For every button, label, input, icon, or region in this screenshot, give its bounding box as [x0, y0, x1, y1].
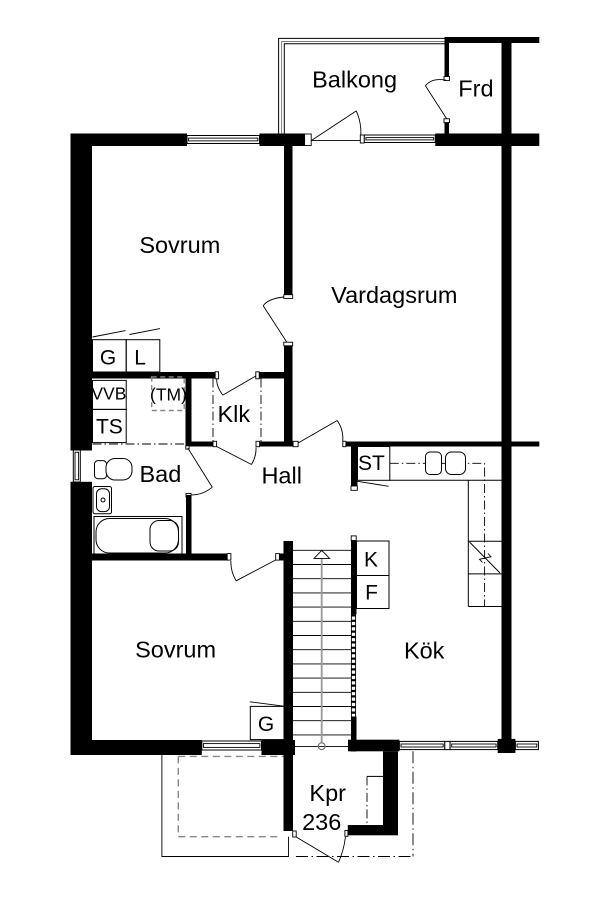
svg-text:G: G — [258, 713, 274, 736]
svg-text:Klk: Klk — [217, 401, 250, 427]
svg-text:Balkong: Balkong — [312, 67, 397, 93]
svg-text:G: G — [100, 346, 116, 369]
svg-text:F: F — [365, 582, 378, 605]
svg-text:TS: TS — [96, 416, 123, 439]
svg-text:ST: ST — [358, 452, 385, 475]
svg-text:K: K — [364, 549, 378, 572]
svg-text:Sovrum: Sovrum — [135, 636, 216, 662]
svg-text:Hall: Hall — [261, 463, 301, 489]
svg-text:Vardagsrum: Vardagsrum — [331, 282, 457, 308]
svg-text:Frd: Frd — [458, 76, 493, 102]
svg-text:236: 236 — [302, 809, 341, 835]
svg-text:Bad: Bad — [139, 461, 181, 487]
svg-text:Kpr: Kpr — [309, 780, 346, 806]
svg-text:Kök: Kök — [404, 637, 445, 663]
svg-text:VVB: VVB — [91, 384, 126, 404]
svg-text:Sovrum: Sovrum — [139, 232, 220, 258]
svg-text:L: L — [134, 346, 146, 369]
svg-text:(TM): (TM) — [150, 385, 187, 405]
